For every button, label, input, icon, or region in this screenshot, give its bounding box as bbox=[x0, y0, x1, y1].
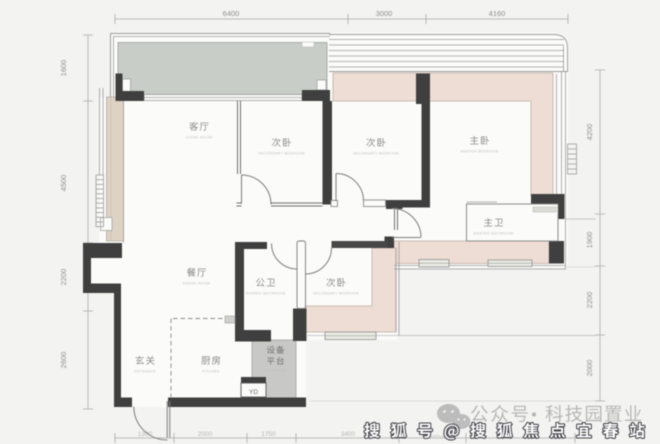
svg-text:ENTRANCE: ENTRANCE bbox=[134, 369, 156, 373]
svg-text:SECONDARY BEDROOM: SECONDARY BEDROOM bbox=[353, 151, 399, 155]
svg-text:KITCHEN: KITCHEN bbox=[202, 369, 220, 373]
svg-text:2000: 2000 bbox=[585, 360, 594, 377]
svg-text:4200: 4200 bbox=[585, 124, 594, 141]
svg-text:1750: 1750 bbox=[261, 431, 276, 438]
svg-text:1900: 1900 bbox=[585, 232, 594, 249]
svg-text:SECONDARY BEDROOM: SECONDARY BEDROOM bbox=[313, 291, 359, 295]
svg-text:4160: 4160 bbox=[489, 9, 506, 18]
svg-text:3400: 3400 bbox=[341, 431, 356, 438]
svg-text:2200: 2200 bbox=[59, 269, 68, 286]
svg-text:4500: 4500 bbox=[59, 175, 68, 192]
svg-text:MASTER BATHROOM: MASTER BATHROOM bbox=[473, 231, 513, 235]
svg-text:2600: 2600 bbox=[59, 352, 68, 369]
svg-text:SECONDARY BEDROOM: SECONDARY BEDROOM bbox=[258, 151, 304, 155]
svg-text:MASTER BEDROOM: MASTER BEDROOM bbox=[461, 149, 499, 153]
svg-text:PLATFORM: PLATFORM bbox=[265, 369, 286, 373]
svg-text:6400: 6400 bbox=[223, 9, 240, 18]
svg-text:SHARED BATHROOM: SHARED BATHROOM bbox=[245, 291, 285, 295]
svg-text:LIVING ROOM: LIVING ROOM bbox=[186, 135, 213, 139]
svg-text:3000: 3000 bbox=[376, 9, 393, 18]
svg-text:YD: YD bbox=[249, 389, 258, 396]
svg-text:2200: 2200 bbox=[585, 292, 594, 309]
svg-text:DINING ROOM: DINING ROOM bbox=[183, 281, 210, 285]
svg-text:2000: 2000 bbox=[198, 431, 213, 438]
svg-text:1600: 1600 bbox=[59, 60, 68, 77]
